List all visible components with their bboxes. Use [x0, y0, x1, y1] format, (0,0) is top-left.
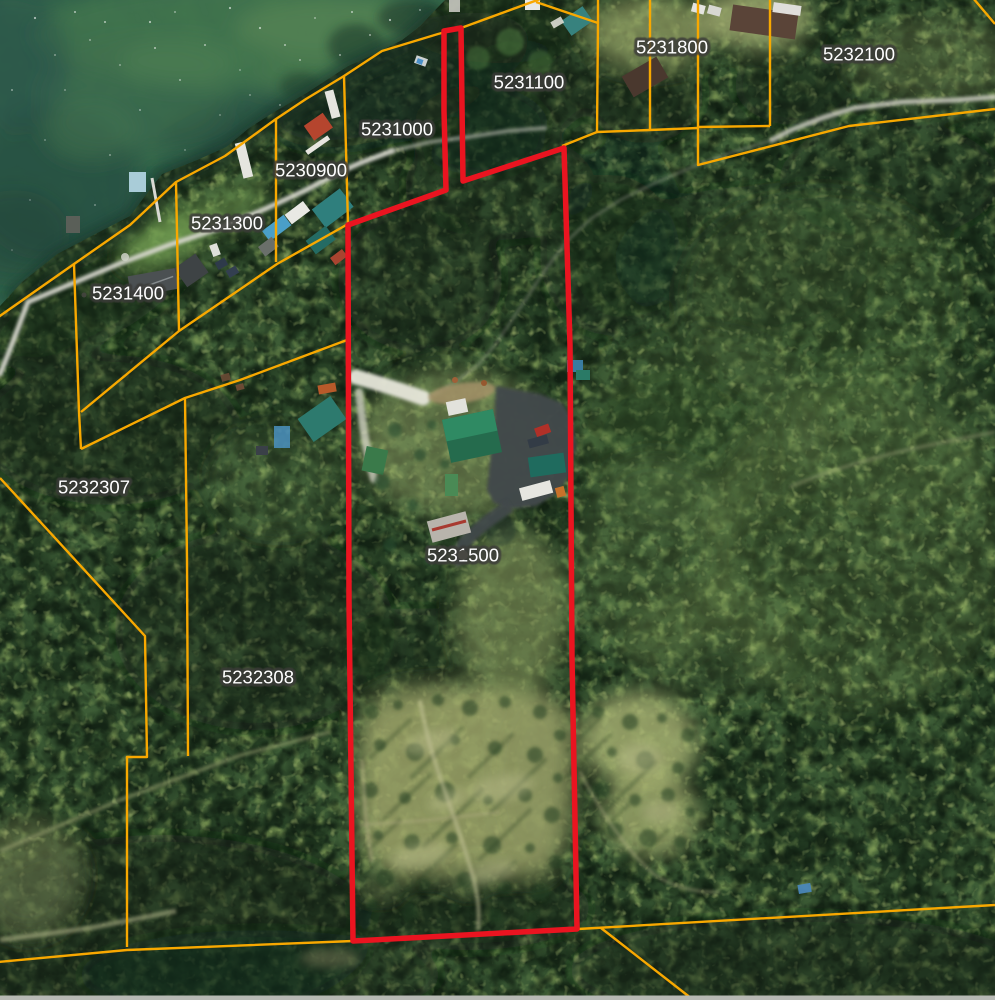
- svg-text:5232100: 5232100: [823, 44, 895, 65]
- svg-text:5231000: 5231000: [361, 119, 433, 140]
- svg-text:5231400: 5231400: [92, 283, 164, 304]
- svg-text:5231100: 5231100: [494, 72, 565, 93]
- svg-text:5231800: 5231800: [636, 37, 708, 58]
- svg-text:5230900: 5230900: [275, 160, 347, 181]
- svg-text:5231300: 5231300: [191, 213, 263, 234]
- svg-text:5232307: 5232307: [58, 477, 130, 498]
- svg-text:5232308: 5232308: [222, 667, 294, 688]
